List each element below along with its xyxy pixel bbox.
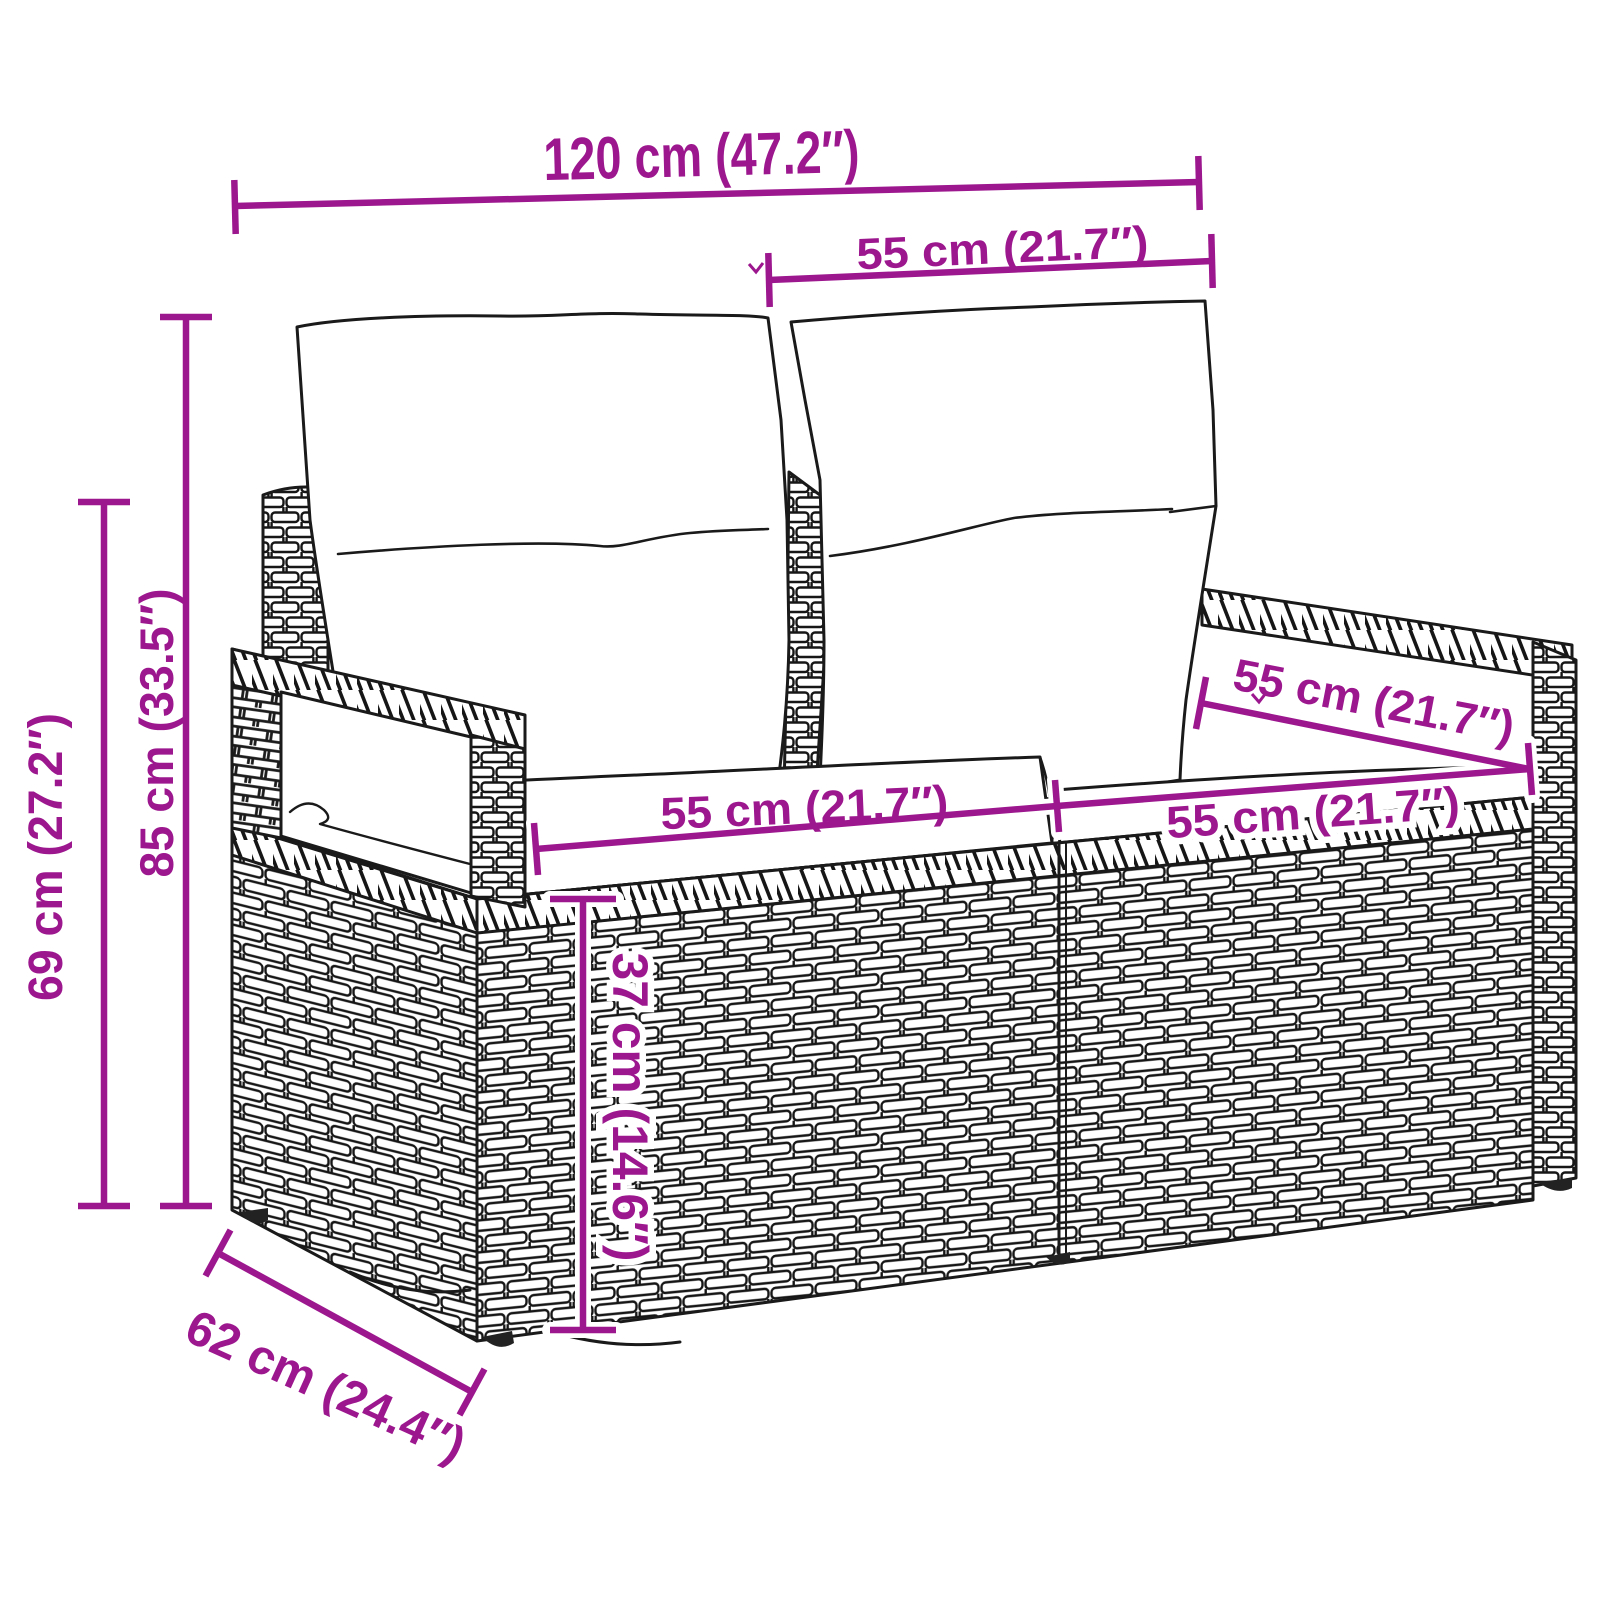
svg-text:62 cm (24.4″): 62 cm (24.4″) <box>178 1300 474 1473</box>
svg-text:85 cm (33.5″): 85 cm (33.5″) <box>130 589 183 878</box>
svg-text:120 cm (47.2″): 120 cm (47.2″) <box>543 118 861 193</box>
svg-text:69 cm (27.2″): 69 cm (27.2″) <box>20 713 73 1001</box>
svg-text:37 cm (14.6″): 37 cm (14.6″) <box>602 953 658 1262</box>
